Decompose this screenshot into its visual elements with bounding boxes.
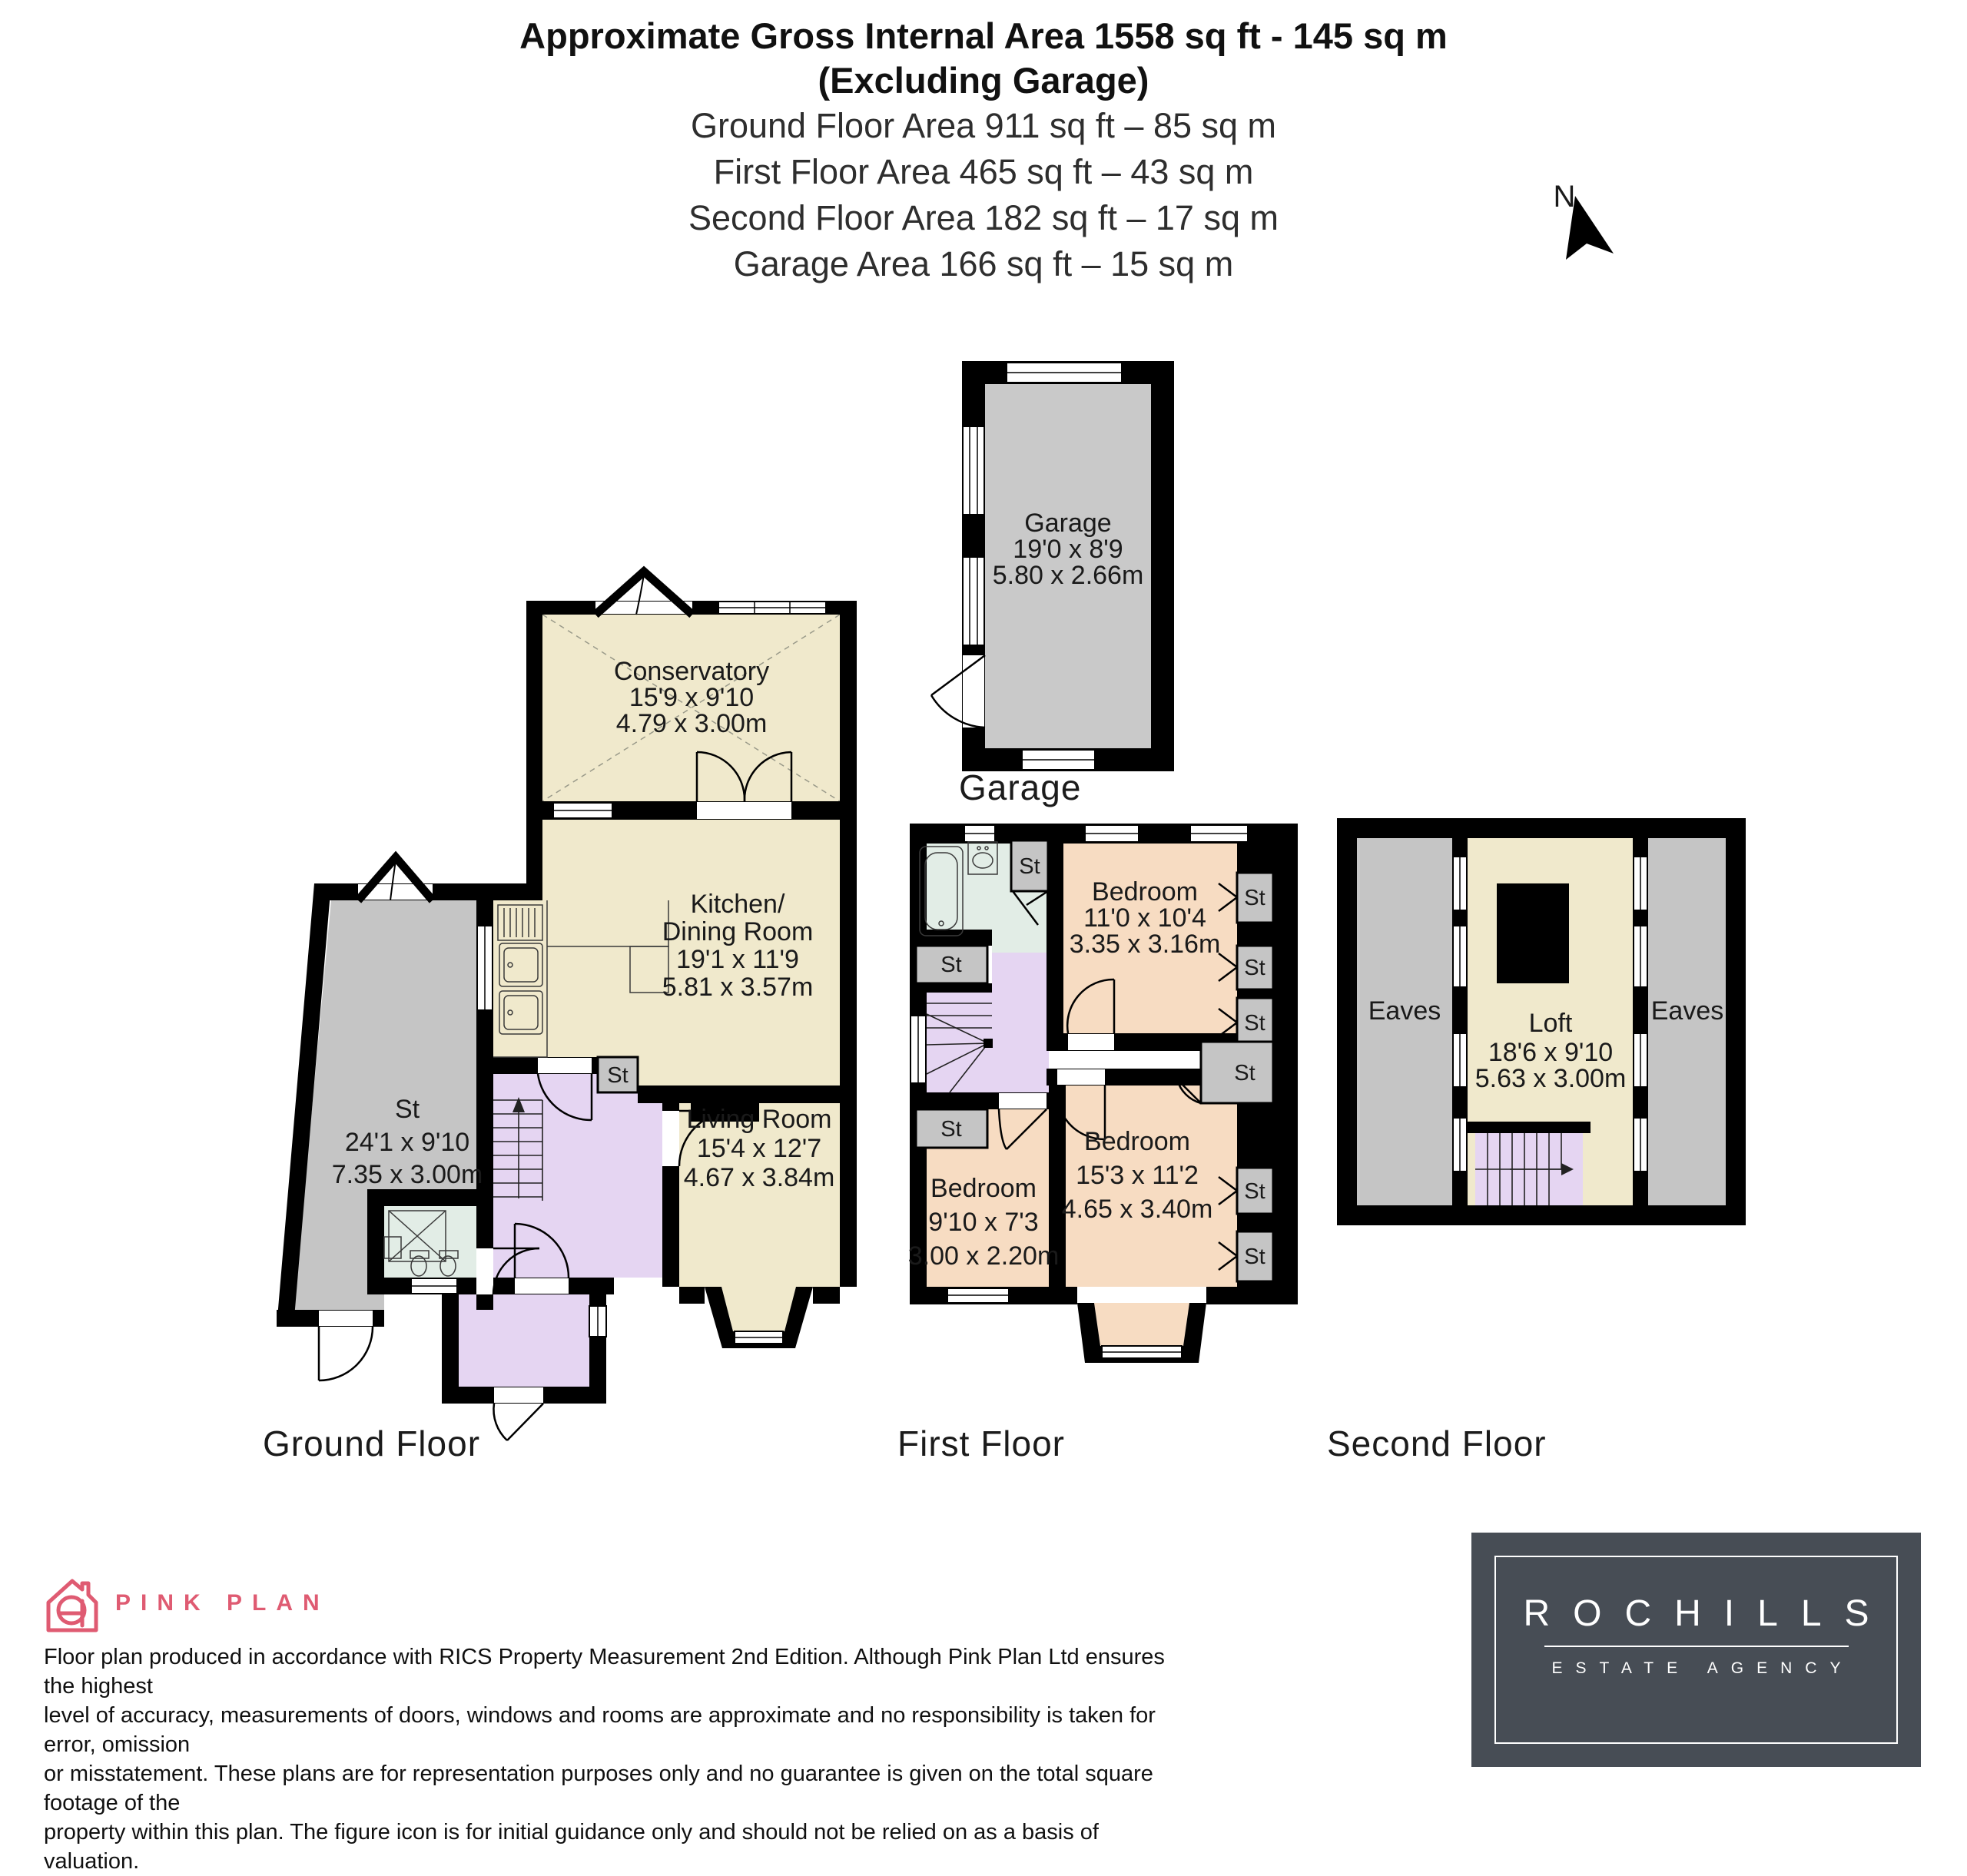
bedroom-small-name: Bedroom <box>930 1174 1037 1203</box>
storage-metric: 7.35 x 3.00m <box>332 1160 483 1189</box>
disclaimer-line-1: Floor plan produced in accordance with R… <box>44 1642 1196 1701</box>
kitchen-name-2: Dining Room <box>662 917 814 946</box>
first-floor-plan: Bedroom 11'0 x 10'4 3.35 x 3.16m Bedroom… <box>907 814 1314 1398</box>
st-label-left-low: St <box>940 1117 961 1142</box>
eaves-right-label: Eaves <box>1651 996 1724 1026</box>
second-floor-plan: Eaves Eaves Loft 18'6 x 9'10 5.63 x 3.00… <box>1329 810 1760 1241</box>
brand-name: PINK PLAN <box>115 1590 330 1616</box>
living-room-name: Living Room <box>687 1105 832 1134</box>
garage-door-opening <box>963 655 984 728</box>
conservatory-name: Conservatory <box>614 657 769 686</box>
ground-floor-area-line: Ground Floor Area 911 sq ft – 85 sq m <box>0 103 1967 149</box>
title-line-2: (Excluding Garage) <box>0 58 1967 103</box>
agency-divider <box>1544 1646 1849 1647</box>
conservatory-imperial: 15'9 x 9'10 <box>629 683 754 712</box>
bedroom-small-metric: 3.00 x 2.20m <box>908 1241 1060 1271</box>
loft-name: Loft <box>1529 1009 1573 1038</box>
bedroom-rear-name: Bedroom <box>1092 877 1198 907</box>
storage-name: St <box>395 1095 420 1124</box>
garage-room-metric: 5.80 x 2.66m <box>993 561 1144 590</box>
st-label-big: St <box>1234 1061 1255 1085</box>
kitchen-imperial: 19'1 x 11'9 <box>676 945 799 974</box>
second-floor-caption: Second Floor <box>1327 1423 1547 1464</box>
st-label-right-5: St <box>1244 1245 1265 1269</box>
living-room-metric: 4.67 x 3.84m <box>684 1163 835 1192</box>
st-label-top: St <box>1019 854 1040 879</box>
north-compass: N <box>1537 173 1652 273</box>
disclaimer-text: Floor plan produced in accordance with R… <box>44 1642 1196 1876</box>
garage-area-line: Garage Area 166 sq ft – 15 sq m <box>0 241 1967 287</box>
living-room-imperial: 15'4 x 12'7 <box>697 1134 821 1163</box>
kitchen-metric: 5.81 x 3.57m <box>662 973 814 1002</box>
disclaimer-line-2: level of accuracy, measurements of doors… <box>44 1701 1196 1759</box>
kitchen-name-1: Kitchen/ <box>691 890 785 919</box>
bedroom-front-metric: 4.65 x 3.40m <box>1062 1195 1213 1224</box>
title-line-1: Approximate Gross Internal Area 1558 sq … <box>0 14 1967 58</box>
ground-floor-plan: Conservatory 15'9 x 9'10 4.79 x 3.00m Ki… <box>261 553 884 1483</box>
small-storage-label: St <box>607 1063 628 1088</box>
st-label-right-4: St <box>1244 1179 1265 1204</box>
bedroom-front-imperial: 15'3 x 11'2 <box>1076 1161 1199 1190</box>
bedroom-rear-imperial: 11'0 x 10'4 <box>1083 903 1206 933</box>
bedroom-front-bay-floor <box>1094 1303 1189 1346</box>
disclaimer-line-4: property within this plan. The figure ic… <box>44 1818 1196 1876</box>
eaves-left-label: Eaves <box>1368 996 1441 1026</box>
storage-imperial: 24'1 x 9'10 <box>345 1128 469 1157</box>
agency-tagline: ESTATE AGENCY <box>1496 1659 1896 1678</box>
disclaimer-line-3: or misstatement. These plans are for rep… <box>44 1759 1196 1818</box>
agency-name: ROCHILLS <box>1496 1593 1896 1635</box>
bedroom-rear-metric: 3.35 x 3.16m <box>1070 930 1221 959</box>
garage-caption: Garage <box>959 767 1081 808</box>
st-label-right-3: St <box>1244 1011 1265 1036</box>
garage-plan: Garage 19'0 x 8'9 5.80 x 2.66m <box>953 350 1183 787</box>
loft-metric: 5.63 x 3.00m <box>1475 1064 1627 1093</box>
ground-floor-caption: Ground Floor <box>263 1423 480 1464</box>
bedroom-front-name: Bedroom <box>1084 1127 1190 1156</box>
st-label-right-1: St <box>1244 886 1265 910</box>
bedroom-small-imperial: 9'10 x 7'3 <box>928 1208 1038 1237</box>
north-label: N <box>1554 180 1576 214</box>
st-label-right-2: St <box>1244 956 1265 980</box>
conservatory-metric: 4.79 x 3.00m <box>616 709 768 738</box>
garage-room-imperial: 19'0 x 8'9 <box>1013 535 1123 564</box>
chimney-block <box>1497 883 1569 983</box>
pink-plan-logo-icon <box>42 1572 104 1635</box>
agency-logo: ROCHILLS ESTATE AGENCY <box>1471 1533 1921 1767</box>
agency-logo-border: ROCHILLS ESTATE AGENCY <box>1494 1556 1898 1744</box>
garage-room-name: Garage <box>1024 509 1111 538</box>
first-floor-caption: First Floor <box>897 1423 1065 1464</box>
living-bay-floor <box>721 1287 796 1331</box>
ground-bathroom <box>384 1206 476 1278</box>
first-floor-area-line: First Floor Area 465 sq ft – 43 sq m <box>0 149 1967 195</box>
loft-imperial: 18'6 x 9'10 <box>1488 1038 1613 1067</box>
header-block: Approximate Gross Internal Area 1558 sq … <box>0 14 1967 287</box>
st-label-left-mid: St <box>940 953 961 977</box>
second-floor-area-line: Second Floor Area 182 sq ft – 17 sq m <box>0 195 1967 241</box>
